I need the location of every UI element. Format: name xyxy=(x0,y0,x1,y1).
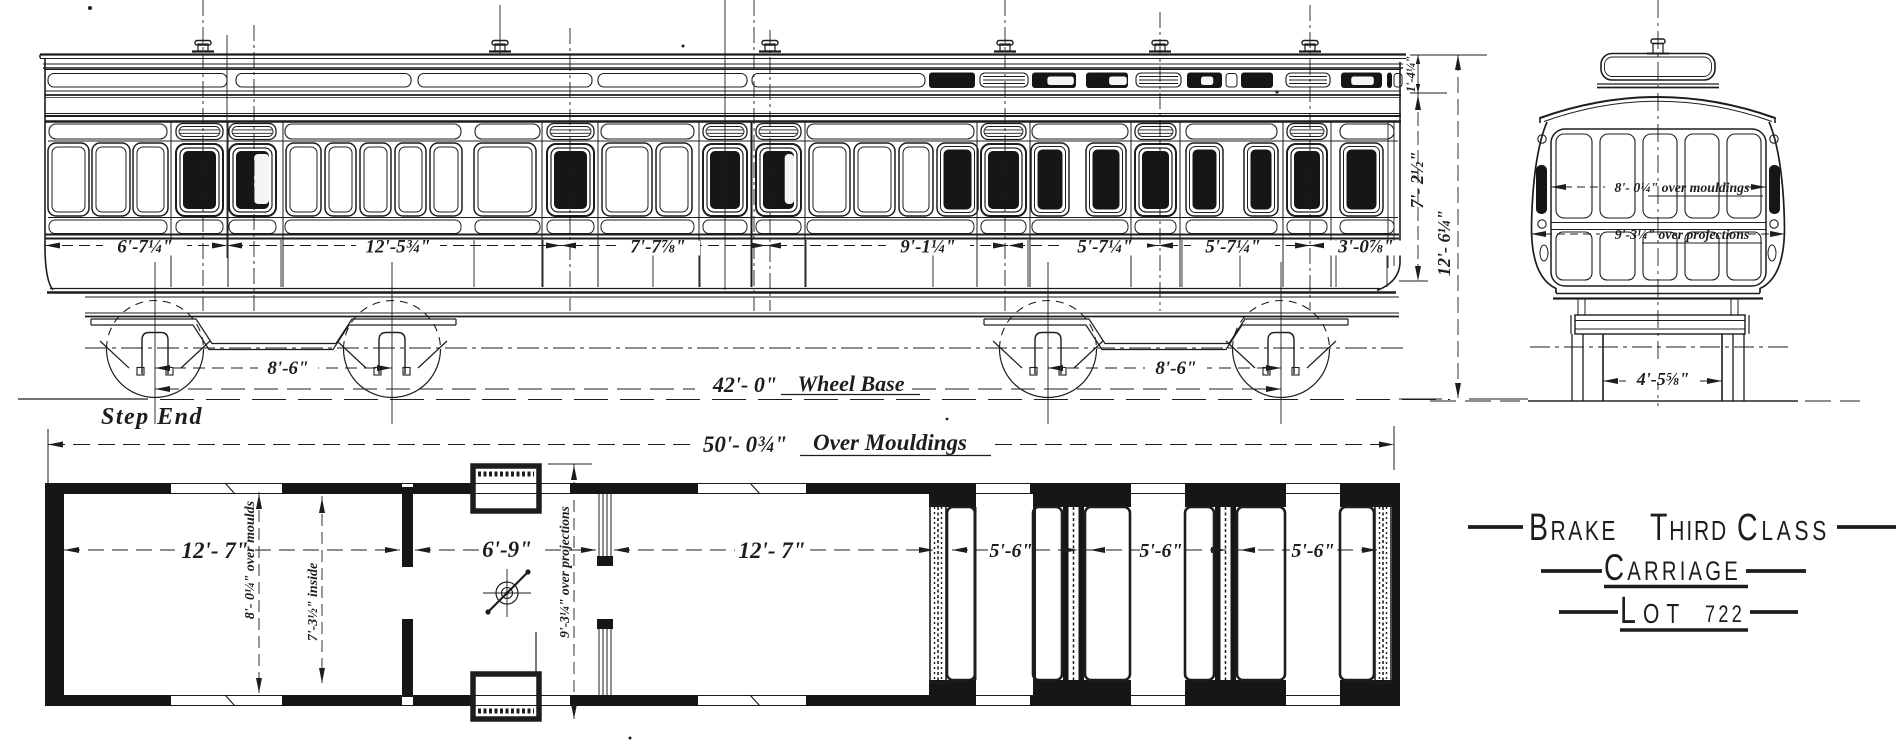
svg-text:5'-7¼": 5'-7¼" xyxy=(1077,237,1132,258)
svg-text:12'- 6¼": 12'- 6¼" xyxy=(1434,210,1454,276)
svg-text:5'-6": 5'-6" xyxy=(1291,540,1334,562)
svg-text:6'-9": 6'-9" xyxy=(482,537,532,562)
svg-text:12'- 7": 12'- 7" xyxy=(738,538,805,563)
svg-text:50'- 0¾": 50'- 0¾" xyxy=(703,432,787,457)
svg-text:12'-5¾": 12'-5¾" xyxy=(366,237,431,258)
svg-text:9'-3¼" over projections: 9'-3¼" over projections xyxy=(1615,227,1750,242)
svg-text:1'-4¼": 1'-4¼" xyxy=(1404,56,1418,93)
svg-text:7'-3½" inside: 7'-3½" inside xyxy=(306,563,321,642)
svg-text:5'-6": 5'-6" xyxy=(1139,540,1182,562)
svg-text:9'-1¼": 9'-1¼" xyxy=(900,237,955,258)
svg-text:Step End: Step End xyxy=(101,404,203,430)
svg-text:8'-6": 8'-6" xyxy=(1155,358,1196,379)
svg-text:3'-0⅞": 3'-0⅞" xyxy=(1337,237,1393,258)
svg-text:6'-7¼": 6'-7¼" xyxy=(117,237,172,258)
svg-text:9'-3¼" over projections: 9'-3¼" over projections xyxy=(557,506,572,638)
svg-text:Over Mouldings: Over Mouldings xyxy=(813,430,967,455)
svg-text:5'-7¼": 5'-7¼" xyxy=(1205,237,1260,258)
svg-text:4'-5⅝": 4'-5⅝" xyxy=(1636,369,1690,389)
svg-text:5'-6": 5'-6" xyxy=(989,540,1032,562)
svg-text:8'- 0¼" over mouldings: 8'- 0¼" over mouldings xyxy=(1615,180,1750,195)
svg-text:42'- 0": 42'- 0" xyxy=(712,372,777,397)
svg-text:12'- 7": 12'- 7" xyxy=(181,538,248,563)
svg-text:7'-7⅞": 7'-7⅞" xyxy=(630,237,685,258)
svg-text:8'- 0¼" over moulds: 8'- 0¼" over moulds xyxy=(243,500,258,619)
svg-text:722: 722 xyxy=(1705,602,1745,628)
svg-text:7'- 2½": 7'- 2½" xyxy=(1407,152,1427,209)
svg-text:Wheel Base: Wheel Base xyxy=(798,371,905,396)
svg-text:8'-6": 8'-6" xyxy=(267,358,308,379)
